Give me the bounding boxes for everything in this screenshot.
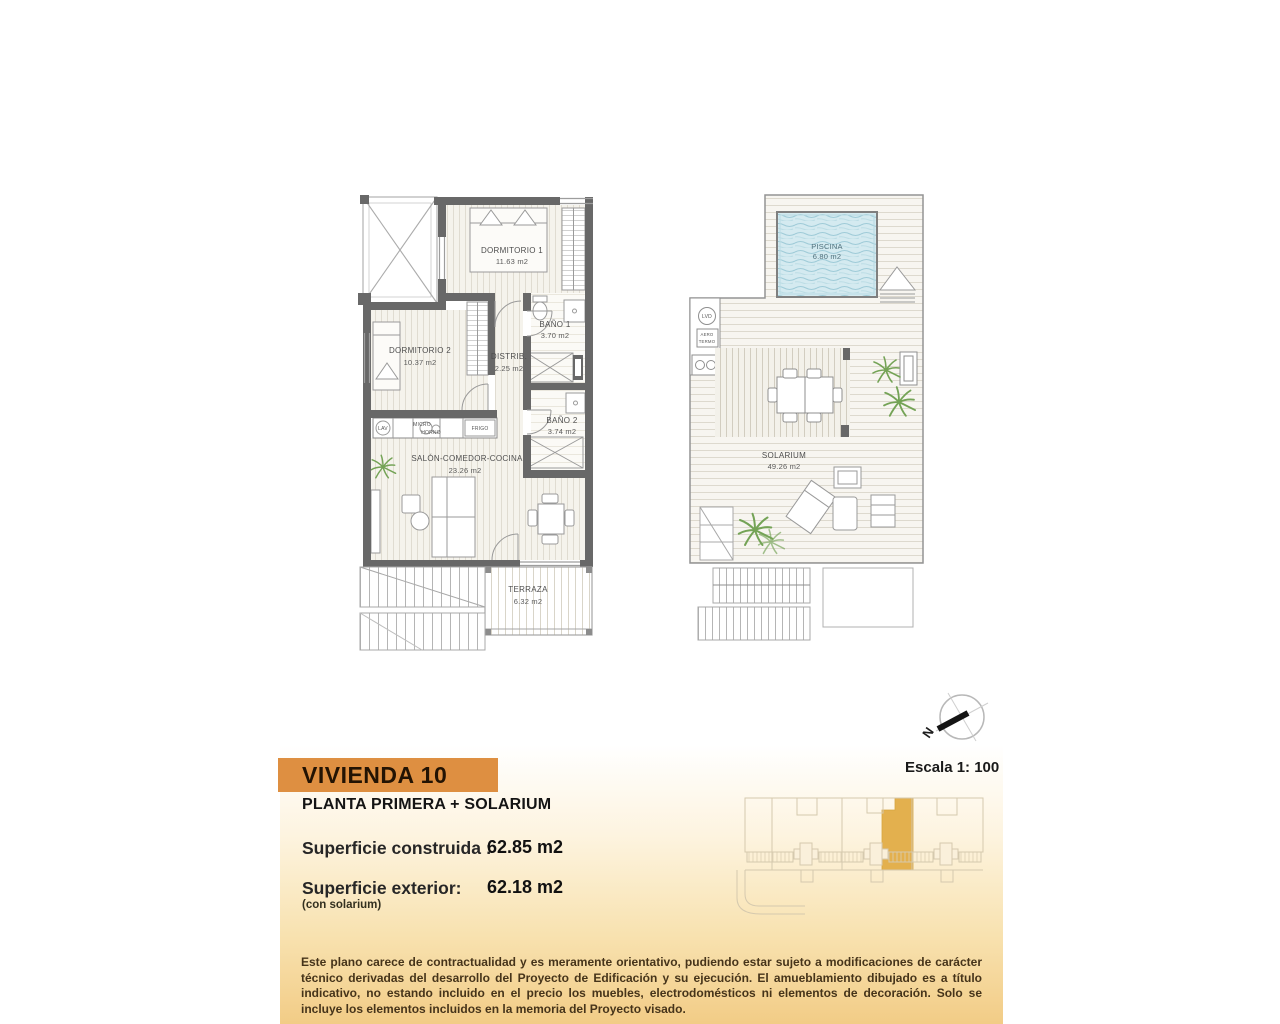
floor-subtitle: PLANTA PRIMERA + SOLARIUM [302, 796, 551, 814]
wall-panel [900, 352, 917, 385]
exterior-surface-note: (con solarium) [302, 899, 381, 911]
site-outline [737, 798, 983, 914]
label-lavadora: LAV [378, 426, 388, 432]
area-bano1: 3.70 m2 [541, 331, 570, 340]
pool: PISCINA 6.80 m2 [777, 212, 877, 297]
area-dormitorio2: 10.37 m2 [404, 358, 437, 367]
exterior-surface-label: Superficie exterior: [302, 878, 462, 899]
north-label: N [922, 724, 937, 740]
floorplan-planta-primera: DORMITORIO 1 11.63 m2 DORMITORIO 2 10.37… [352, 183, 667, 663]
area-solarium: 49.26 m2 [768, 462, 801, 471]
label-lvd: LVD [702, 314, 712, 320]
label-terraza: TERRAZA [508, 585, 548, 594]
area-salon: 23.26 m2 [449, 466, 482, 475]
area-dormitorio1: 11.63 m2 [496, 257, 528, 266]
label-dormitorio1: DORMITORIO 1 [481, 246, 543, 255]
legal-disclaimer: Este plano carece de contractualidad y e… [301, 955, 982, 1017]
unit-title-banner: VIVIENDA 10 [278, 758, 498, 792]
area-piscina: 6.80 m2 [813, 252, 842, 261]
site-plan-mini-map [735, 778, 991, 928]
area-distribuidor: 2.25 m2 [495, 364, 524, 373]
compass-north-icon: N [922, 687, 1002, 755]
scale-label: Escala 1: 100 [905, 759, 999, 776]
area-terraza: 6.32 m2 [514, 597, 543, 606]
label-distribuidor: DISTRIB. [491, 352, 527, 361]
label-aero: AERO [701, 332, 714, 337]
void-roof-box [363, 197, 437, 303]
floorplan-solarium: PISCINA 6.80 m2 LVD AERO TERMO [685, 185, 925, 655]
built-surface-label: Superficie construida : [302, 838, 492, 859]
unit-title: VIVIENDA 10 [278, 758, 498, 792]
label-salon: SALÓN-COMEDOR-COCINA [411, 454, 523, 463]
built-surface-value: 62.85 m2 [487, 837, 563, 858]
wall-niche [575, 359, 581, 376]
area-bano2: 3.74 m2 [548, 427, 577, 436]
label-solarium: SOLARIUM [762, 451, 806, 460]
label-bano1: BAÑO 1 [539, 320, 570, 329]
label-horno: HORNO [421, 430, 441, 436]
label-frigorifico: FRIGO [472, 426, 489, 432]
label-microondas: MICRO [413, 422, 431, 428]
label-piscina: PISCINA [811, 242, 842, 251]
label-bano2: BAÑO 2 [546, 416, 577, 425]
label-termo: TERMO [699, 339, 716, 344]
pergola-dining [715, 348, 850, 437]
exterior-surface-value: 62.18 m2 [487, 877, 563, 898]
stairs-left [360, 567, 485, 650]
label-dormitorio2: DORMITORIO 2 [389, 346, 451, 355]
